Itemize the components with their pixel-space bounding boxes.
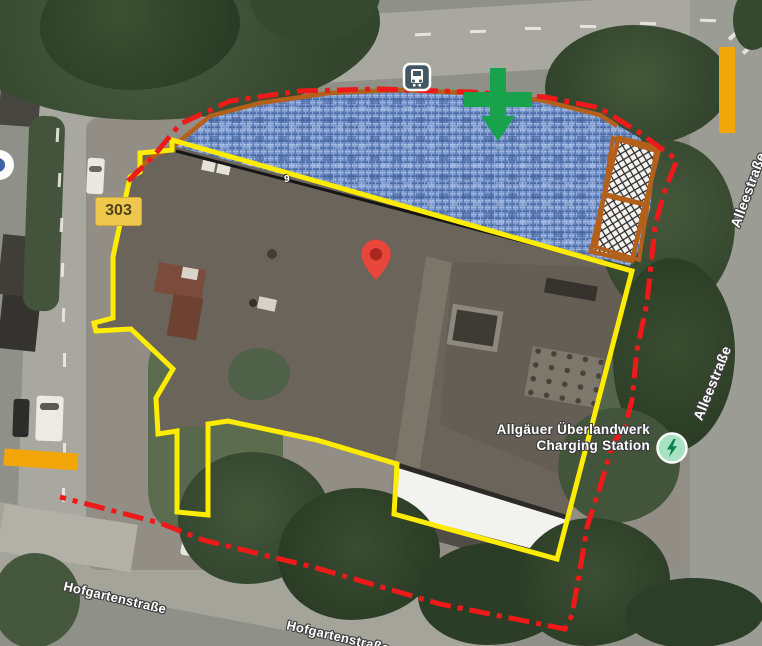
ev-charging-icon[interactable] <box>654 430 690 466</box>
annotation-overlay <box>0 0 762 646</box>
location-pin-icon[interactable] <box>358 238 394 288</box>
poi-label-line1: Allgäuer Überlandwerk <box>430 422 650 438</box>
bus-stop-icon[interactable] <box>402 62 432 92</box>
blue-hatched-zone-texture <box>174 90 655 266</box>
poi-label-charging-station[interactable]: Allgäuer Überlandwerk Charging Station <box>430 422 650 454</box>
route-badge-303: 303 <box>95 197 142 226</box>
satellite-map-canvas[interactable]: 303 9 Alleestraße Alleestraße Hofgartens… <box>0 0 762 646</box>
house-number: 9 <box>284 174 290 185</box>
poi-label-line2: Charging Station <box>430 438 650 454</box>
